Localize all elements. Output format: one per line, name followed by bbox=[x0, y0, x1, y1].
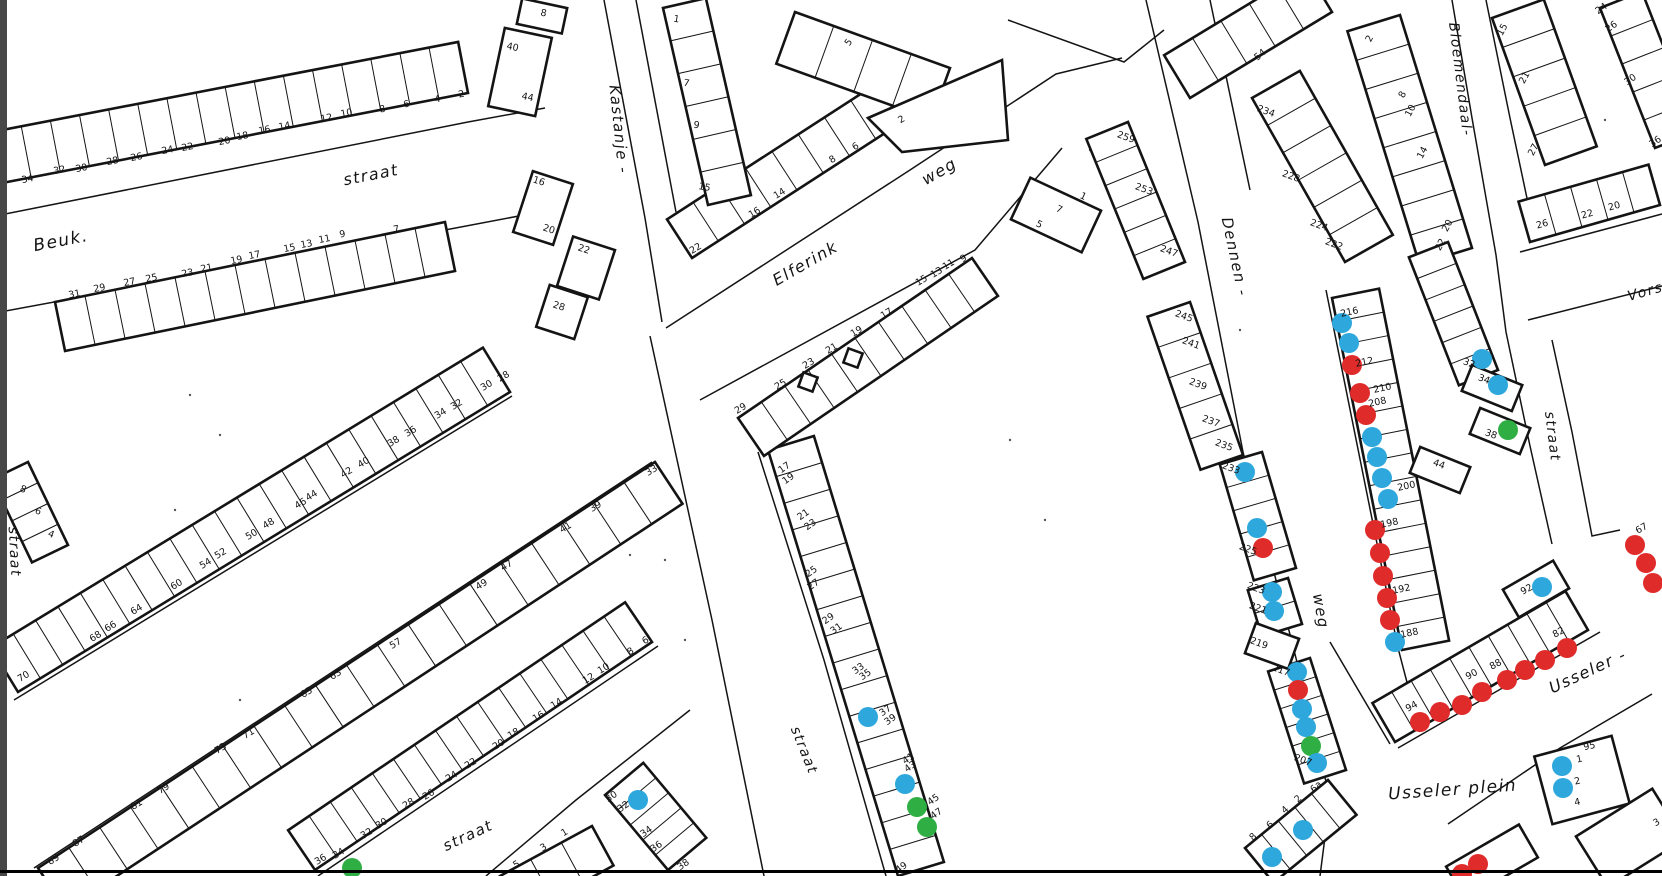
building-block bbox=[843, 348, 862, 367]
house-marker-red[interactable] bbox=[1472, 682, 1492, 702]
house-marker-blue[interactable] bbox=[1293, 820, 1313, 840]
house-marker-blue[interactable] bbox=[858, 707, 878, 727]
map-speckle bbox=[664, 559, 666, 561]
house-number-label: 14 bbox=[278, 120, 292, 133]
house-marker-green[interactable] bbox=[1498, 420, 1518, 440]
house-marker-blue[interactable] bbox=[628, 790, 648, 810]
house-marker-green[interactable] bbox=[1301, 736, 1321, 756]
house-marker-blue[interactable] bbox=[1372, 468, 1392, 488]
house-number-label: 31 bbox=[68, 288, 82, 301]
house-number-label: 30 bbox=[75, 162, 89, 175]
house-marker-red[interactable] bbox=[1625, 535, 1645, 555]
house-marker-blue[interactable] bbox=[1264, 601, 1284, 621]
house-marker-red[interactable] bbox=[1373, 566, 1393, 586]
map-speckle bbox=[189, 394, 191, 396]
house-marker-blue[interactable] bbox=[1292, 699, 1312, 719]
house-marker-blue[interactable] bbox=[1362, 427, 1382, 447]
house-marker-red[interactable] bbox=[1535, 650, 1555, 670]
house-marker-red[interactable] bbox=[1515, 660, 1535, 680]
house-marker-blue[interactable] bbox=[1247, 518, 1267, 538]
city-map: 3432302826242220181614121086423129272523… bbox=[0, 0, 1662, 876]
house-marker-blue[interactable] bbox=[1262, 582, 1282, 602]
house-number-label: 26 bbox=[130, 151, 144, 164]
house-marker-green[interactable] bbox=[907, 797, 927, 817]
house-number-label: 18 bbox=[236, 130, 250, 143]
house-number-label: 27 bbox=[123, 276, 137, 289]
house-number-label: 11 bbox=[318, 233, 332, 246]
house-number-label: 24 bbox=[161, 144, 175, 157]
house-marker-blue[interactable] bbox=[1367, 447, 1387, 467]
house-marker-blue[interactable] bbox=[1553, 778, 1573, 798]
house-marker-blue[interactable] bbox=[1532, 577, 1552, 597]
house-marker-red[interactable] bbox=[1497, 670, 1517, 690]
house-number-label: 15 bbox=[698, 181, 712, 194]
house-number-label: 19 bbox=[230, 254, 244, 267]
house-marker-red[interactable] bbox=[1452, 695, 1472, 715]
map-bottom-border bbox=[0, 870, 1662, 873]
house-marker-red[interactable] bbox=[1636, 553, 1656, 573]
house-marker-blue[interactable] bbox=[1296, 717, 1316, 737]
house-number-label: 17 bbox=[248, 249, 262, 262]
house-number-label: 32 bbox=[53, 164, 67, 177]
map-left-border bbox=[0, 0, 7, 876]
map-speckle bbox=[1239, 329, 1241, 331]
house-marker-blue[interactable] bbox=[895, 774, 915, 794]
house-marker-red[interactable] bbox=[1557, 638, 1577, 658]
map-speckle bbox=[684, 639, 686, 641]
house-marker-red[interactable] bbox=[1288, 680, 1308, 700]
map-speckle bbox=[1604, 119, 1606, 121]
house-marker-red[interactable] bbox=[1380, 610, 1400, 630]
house-number-label: 15 bbox=[283, 242, 297, 255]
house-number-label: 29 bbox=[93, 282, 107, 295]
map-speckle bbox=[239, 699, 241, 701]
house-marker-red[interactable] bbox=[1370, 543, 1390, 563]
house-number-label: 22 bbox=[181, 141, 195, 154]
house-number-label: 10 bbox=[340, 107, 354, 120]
house-marker-red[interactable] bbox=[1430, 702, 1450, 722]
house-marker-blue[interactable] bbox=[1378, 489, 1398, 509]
building-block bbox=[798, 372, 817, 391]
house-marker-red[interactable] bbox=[1410, 712, 1430, 732]
house-number-label: 34 bbox=[21, 173, 35, 186]
house-number-label: 20 bbox=[218, 135, 232, 148]
house-number-label: 21 bbox=[200, 262, 214, 275]
map-speckle bbox=[1044, 519, 1046, 521]
house-marker-blue[interactable] bbox=[1339, 333, 1359, 353]
map-speckle bbox=[1009, 439, 1011, 441]
house-number-label: 25 bbox=[145, 272, 159, 285]
house-number-label: 23 bbox=[181, 267, 195, 280]
house-number-label: 12 bbox=[320, 112, 334, 125]
map-speckle bbox=[174, 509, 176, 511]
house-number-label: 16 bbox=[258, 124, 272, 137]
city-map-viewport: 3432302826242220181614121086423129272523… bbox=[0, 0, 1662, 876]
house-number-label: 28 bbox=[106, 155, 120, 168]
house-marker-blue[interactable] bbox=[1262, 847, 1282, 867]
house-marker-blue[interactable] bbox=[1552, 756, 1572, 776]
house-number-label: 13 bbox=[300, 238, 314, 251]
street-label: straat bbox=[5, 526, 24, 577]
map-speckle bbox=[629, 554, 631, 556]
map-speckle bbox=[219, 434, 221, 436]
house-marker-blue[interactable] bbox=[1488, 375, 1508, 395]
